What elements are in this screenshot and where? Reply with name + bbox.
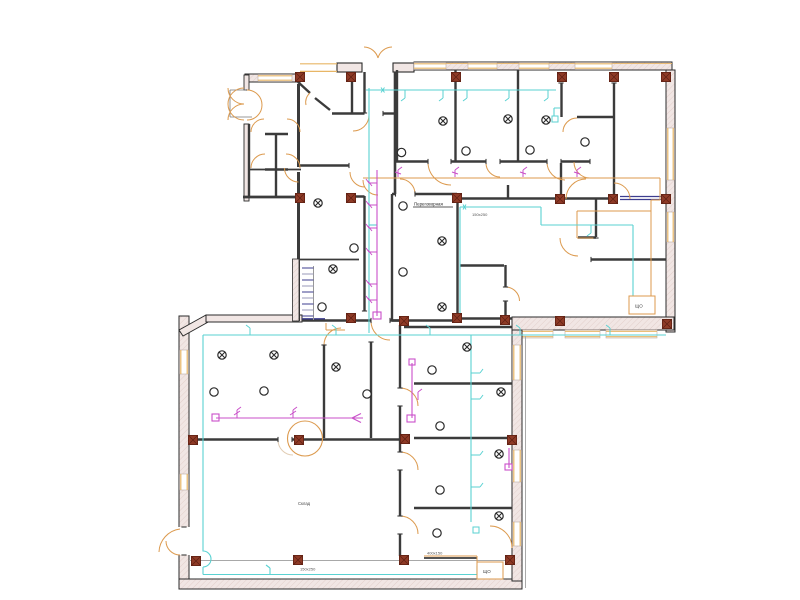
svg-text:Склад: Склад: [298, 501, 311, 506]
svg-text:150х250: 150х250: [300, 567, 316, 572]
svg-text:Переговорная: Переговорная: [414, 202, 443, 207]
svg-text:150х250: 150х250: [472, 212, 488, 217]
svg-text:400х150: 400х150: [427, 551, 443, 556]
svg-text:ЩО: ЩО: [635, 304, 643, 309]
svg-text:ЩО: ЩО: [483, 569, 491, 574]
